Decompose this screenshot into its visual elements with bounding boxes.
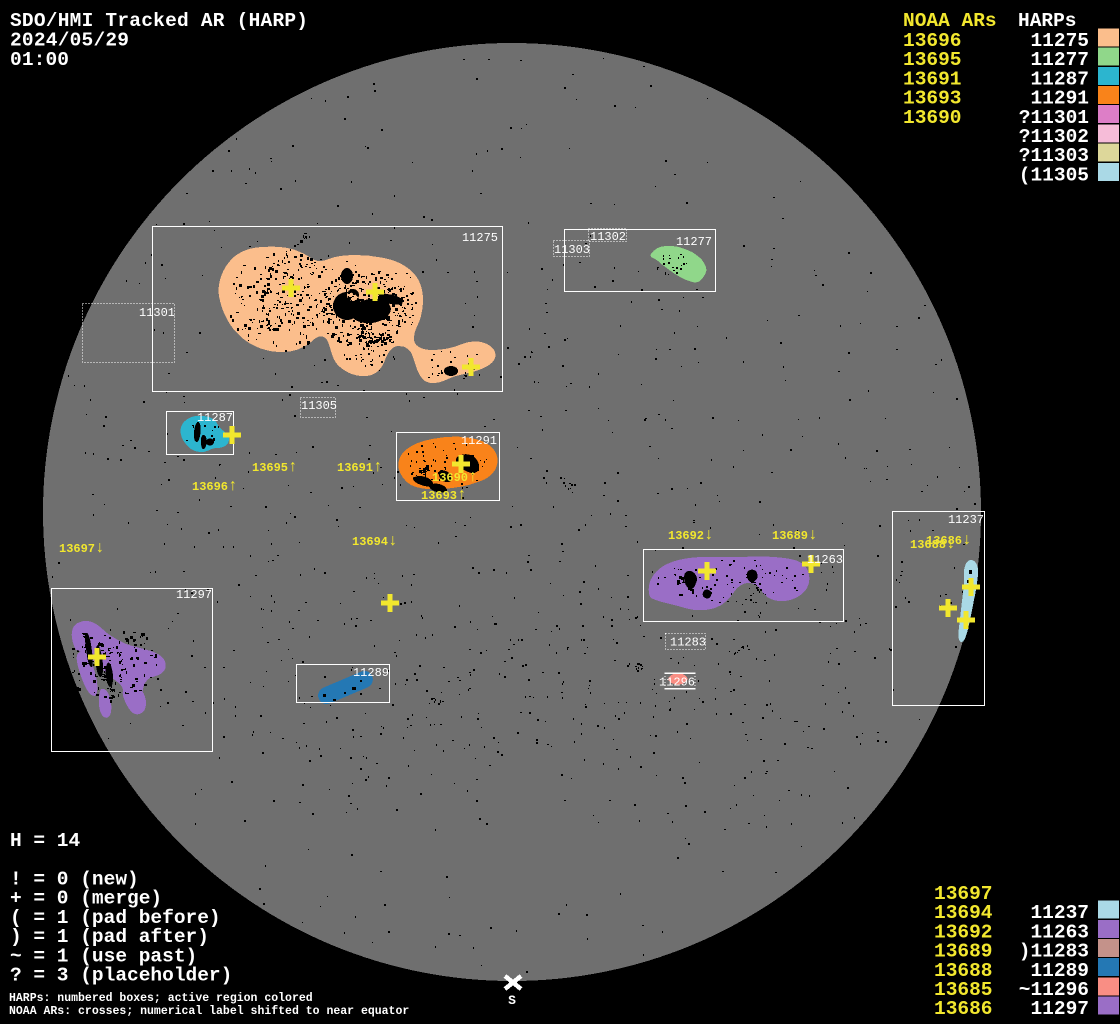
svg-text:11287: 11287	[197, 411, 233, 425]
svg-text:13690↑: 13690↑	[432, 468, 478, 486]
svg-text:13697↓: 13697↓	[59, 539, 105, 557]
svg-text:13686↓: 13686↓	[926, 531, 972, 549]
svg-text:11305: 11305	[301, 399, 337, 413]
svg-text:13692↓: 13692↓	[668, 526, 714, 544]
svg-text:HARPs: numbered boxes; active: HARPs: numbered boxes; active region col…	[9, 992, 313, 1005]
svg-text:13689↓: 13689↓	[772, 526, 818, 544]
svg-text:11283: 11283	[670, 636, 706, 650]
svg-text:11237: 11237	[948, 513, 984, 527]
svg-text:13686: 13686	[934, 998, 993, 1020]
svg-text:? = 3 (placeholder): ? = 3 (placeholder)	[10, 965, 232, 987]
svg-text:11296: 11296	[659, 676, 695, 690]
svg-text:11291: 11291	[461, 434, 497, 448]
svg-text:(11305: (11305	[1019, 164, 1089, 186]
svg-text:11302: 11302	[590, 230, 626, 244]
svg-text:11277: 11277	[676, 235, 712, 249]
svg-text:13694↓: 13694↓	[352, 532, 398, 550]
svg-text:11263: 11263	[807, 553, 843, 567]
svg-text:11297: 11297	[176, 588, 212, 602]
svg-text:NOAA ARs: NOAA ARs	[903, 10, 997, 32]
svg-text:13691↑: 13691↑	[337, 458, 383, 476]
svg-text:H = 14: H = 14	[10, 830, 81, 852]
svg-text:11301: 11301	[139, 306, 175, 320]
svg-text:11289: 11289	[353, 666, 389, 680]
svg-text:13695↑: 13695↑	[252, 458, 298, 476]
svg-text:11275: 11275	[462, 231, 498, 245]
svg-text:S: S	[508, 993, 516, 1008]
svg-text:01:00: 01:00	[10, 49, 69, 71]
svg-text:13696↑: 13696↑	[192, 477, 238, 495]
svg-text:11297: 11297	[1030, 998, 1089, 1020]
svg-text:13693↑: 13693↑	[421, 486, 467, 504]
svg-text:13690: 13690	[903, 107, 962, 129]
svg-text:HARPs: HARPs	[1018, 10, 1077, 32]
svg-text:11303: 11303	[554, 243, 590, 257]
svg-text:NOAA ARs: crosses; numerical l: NOAA ARs: crosses; numerical label shift…	[9, 1005, 409, 1018]
